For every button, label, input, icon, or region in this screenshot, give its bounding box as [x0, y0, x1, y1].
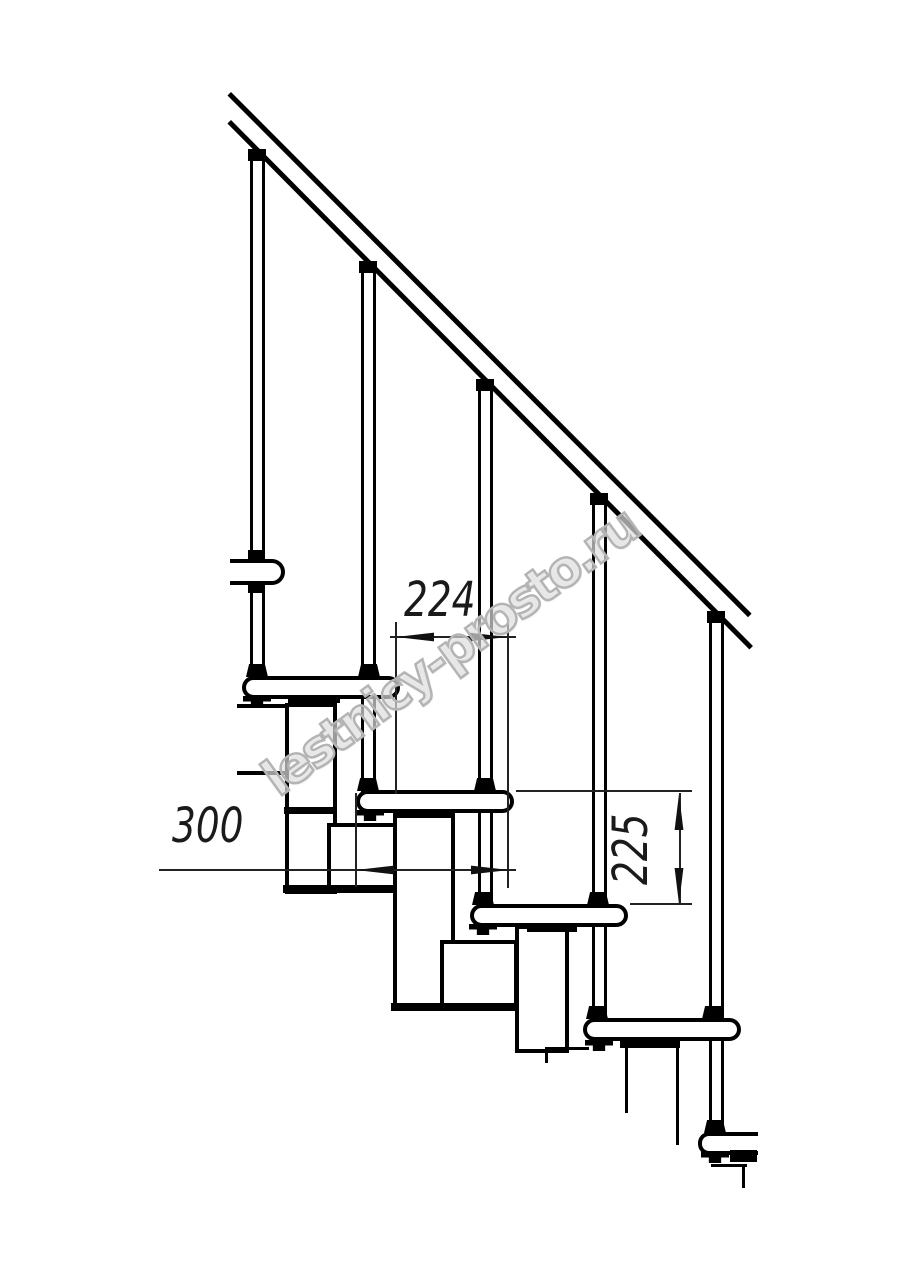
baluster-1-column — [250, 158, 265, 698]
baluster-5-column — [709, 621, 724, 1133]
tread-2-baluster-2-connector — [357, 778, 379, 791]
module-box-2 — [440, 940, 518, 1007]
module-tube-4-right-line — [676, 1044, 679, 1145]
dim-225-down-arrow — [674, 868, 684, 904]
tread-2-baluster-3-connector — [474, 778, 496, 791]
dim-label-225: 225 — [607, 814, 655, 885]
dim-225-bottom-extension-line — [630, 903, 692, 905]
tread-4-baluster-5-connector — [702, 1006, 724, 1019]
watermark-text: lestnicy-prosto.ru — [252, 497, 649, 808]
module-joint-stub — [545, 1047, 548, 1063]
module-joint-line — [545, 1047, 589, 1050]
module-bottom-bar-2 — [391, 1003, 520, 1011]
tread-1-baluster-1-connector — [246, 664, 268, 677]
dim-shared-right-extension-line — [507, 622, 509, 888]
module-tube-4-left-line — [625, 1047, 628, 1113]
tread-4-bolt-cap — [585, 1040, 613, 1051]
module-bottom-bar-1 — [283, 885, 409, 893]
tread-3-baluster-4-connector — [587, 892, 609, 905]
dim-300-left-extension-line — [355, 793, 357, 887]
module-joint-flange-1 — [284, 807, 337, 814]
tread-3-flange-bar — [527, 924, 577, 932]
dim-300-line — [159, 869, 516, 871]
tread-5-baluster-5-connector — [704, 1120, 726, 1133]
tread-3-bolt-cap — [469, 924, 497, 935]
dim-225-up-arrow — [674, 794, 684, 830]
tread-4-baluster-4-connector — [586, 1006, 608, 1019]
tread-2-bolt-cap — [356, 810, 384, 821]
tread-4 — [583, 1018, 741, 1041]
staircase-technical-drawing: 224 300 225 lestnicy-prosto.ru — [0, 0, 914, 1280]
tread-5-flange-block — [730, 1150, 757, 1162]
tread-2-flange-bar — [396, 810, 452, 818]
tread-4-flange-bar — [620, 1040, 680, 1048]
tread-5-bolt-cap — [701, 1152, 729, 1163]
dim-label-300: 300 — [172, 802, 243, 850]
dim-225-top-extension-line — [516, 790, 692, 792]
baluster-1-collar — [230, 559, 285, 585]
module-tube-3 — [515, 925, 569, 1053]
lower-step-riser-line — [742, 1164, 745, 1188]
tread-3-baluster-3-connector — [472, 892, 494, 905]
